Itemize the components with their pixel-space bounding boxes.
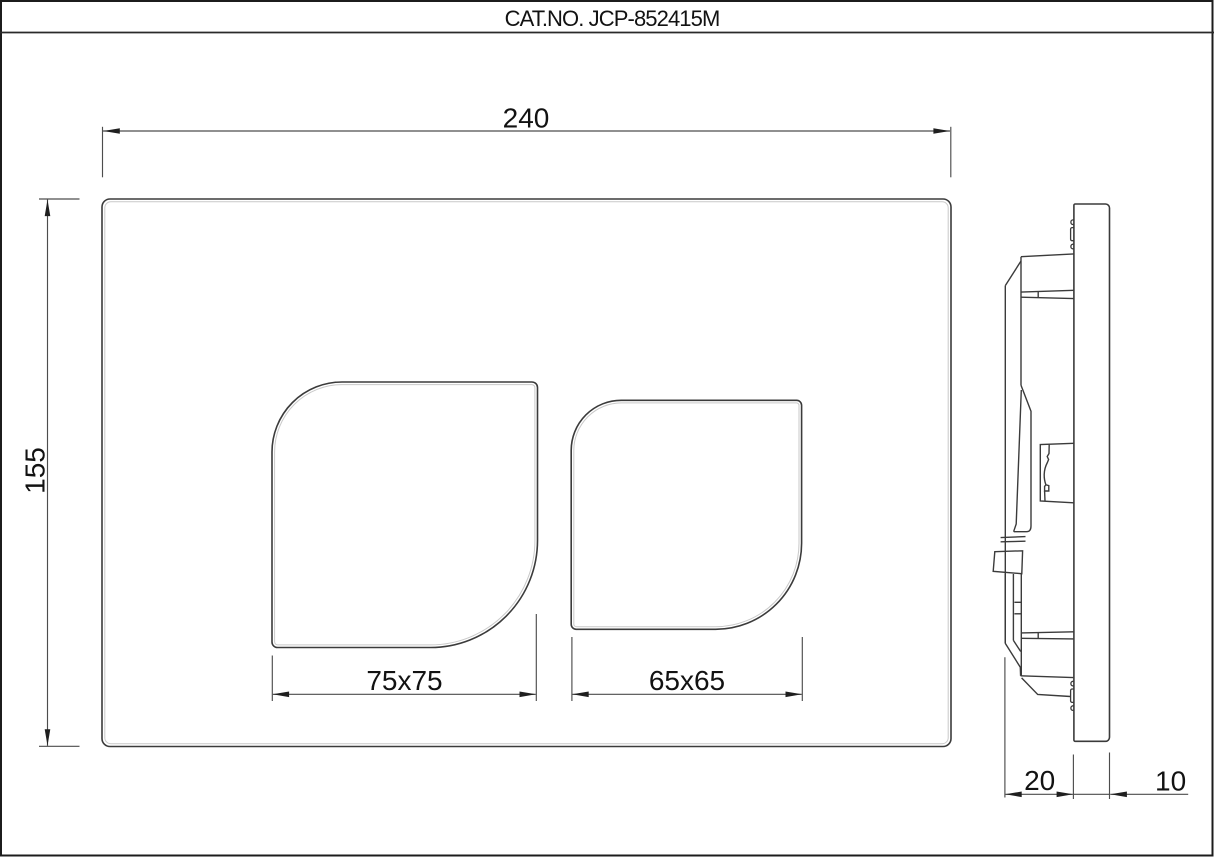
svg-text:155: 155 bbox=[19, 447, 50, 494]
svg-text:65x65: 65x65 bbox=[649, 665, 725, 696]
svg-text:20: 20 bbox=[1024, 765, 1055, 796]
svg-text:75x75: 75x75 bbox=[366, 665, 442, 696]
svg-text:10: 10 bbox=[1155, 765, 1186, 796]
svg-text:CAT.NO. JCP-852415M: CAT.NO. JCP-852415M bbox=[505, 6, 720, 31]
svg-text:240: 240 bbox=[503, 102, 550, 133]
